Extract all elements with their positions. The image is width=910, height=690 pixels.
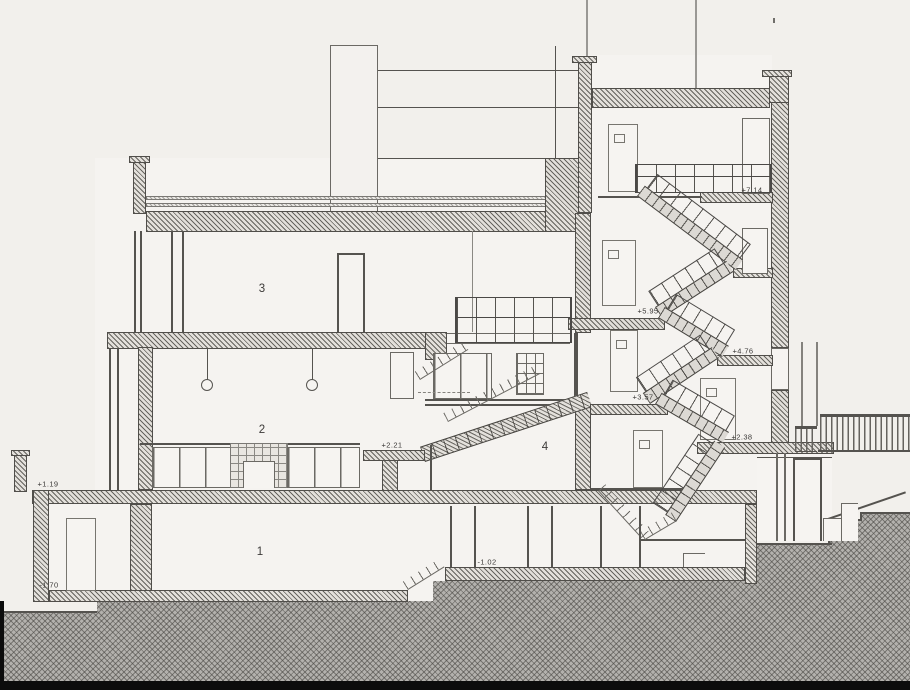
elevation-label: +5.95	[638, 307, 659, 316]
elevation-label: +7.14	[742, 186, 763, 195]
elevation-label: -1.70	[39, 581, 58, 590]
annotation-layer: +7.14+5.95+4.76+3.57+2.38+2.21+1.19-1.02…	[0, 0, 910, 690]
room-number-label: 4	[542, 441, 548, 453]
elevation-label: +2.38	[732, 433, 753, 442]
scan-edge-left	[0, 601, 4, 682]
scan-bar-bottom	[0, 681, 910, 690]
elevation-label: +2.21	[382, 441, 403, 450]
elevation-label: +4.76	[733, 347, 754, 356]
elevation-label: +1.19	[38, 480, 59, 489]
section-drawing: +7.14+5.95+4.76+3.57+2.38+2.21+1.19-1.02…	[0, 0, 910, 690]
room-number-label: 1	[257, 546, 263, 558]
room-number-label: 2	[259, 424, 265, 436]
elevation-label: +3.57	[633, 393, 654, 402]
elevation-label: -1.02	[477, 558, 496, 567]
room-number-label: 3	[259, 283, 265, 295]
